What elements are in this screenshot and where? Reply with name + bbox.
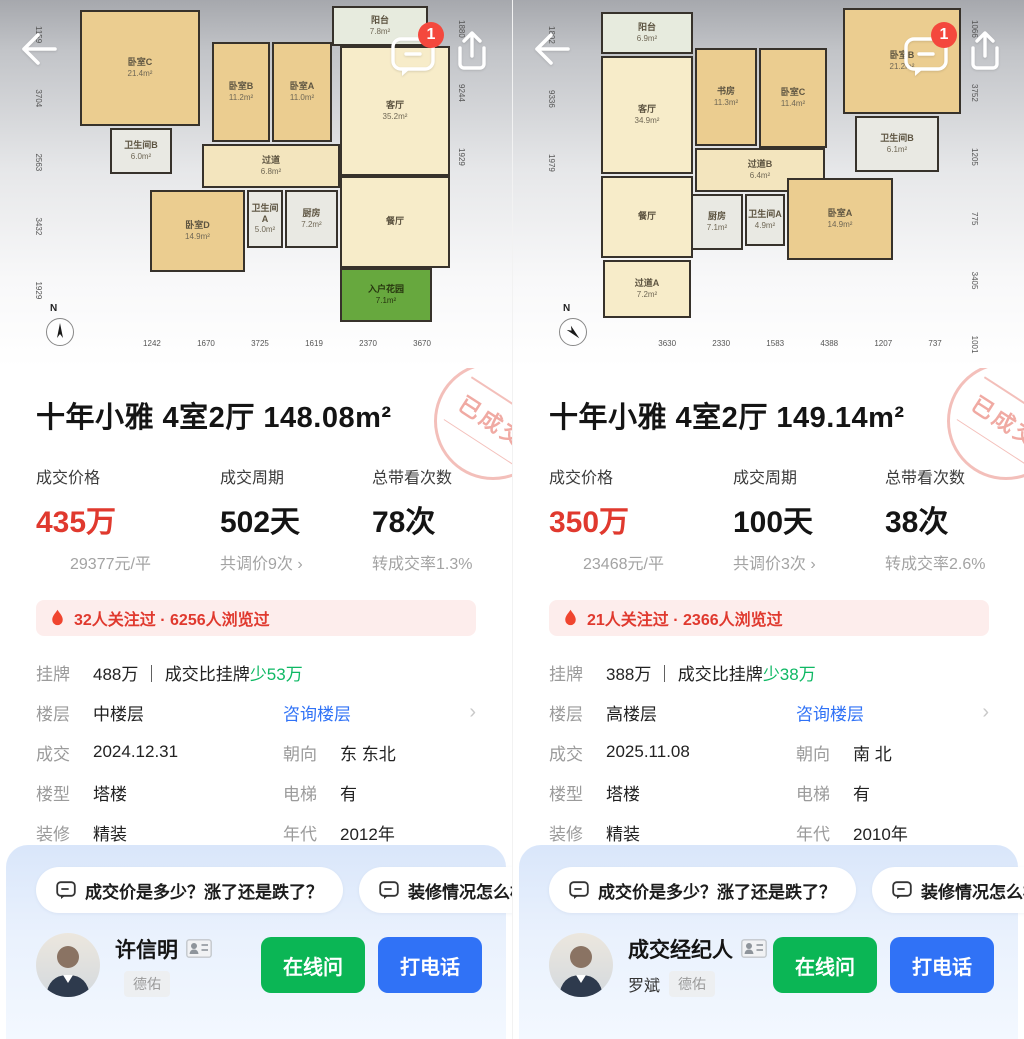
stat-price: 成交价格 350万 23468元/平 (549, 464, 733, 574)
info-card: 已成交 十年小雅 4室2厅 148.08m² 成交价格 435万 29377元/… (0, 368, 512, 845)
stat-cycle: 成交周期 502天 共调价9次 › (220, 464, 372, 574)
id-card-icon (741, 939, 767, 958)
room-dining: 餐厅 (340, 176, 450, 268)
question-chip-decoration[interactable]: 装修情况怎么样? (872, 867, 1024, 913)
room-kitchen: 厨房7.2m² (285, 190, 338, 248)
chat-bubble-icon (379, 881, 399, 900)
room-bedroom-d: 卧室D14.9m² (150, 190, 245, 272)
room-bath-b: 卫生间B6.0m² (110, 128, 172, 174)
consult-floor-link[interactable]: 咨询楼层 (796, 700, 864, 725)
price-diff: 少53万 (250, 660, 303, 685)
flame-icon (50, 609, 65, 627)
chat-bubble-icon (892, 881, 912, 900)
agent-sub-name: 罗斌 (628, 972, 660, 996)
floorplan-left[interactable]: 卧室C21.4m² 卧室B11.2m² 卧室A11.0m² 阳台7.8m² 卫生… (0, 0, 512, 368)
flame-icon (563, 609, 578, 627)
dimensions-bottom: 3630 2330 1583 4388 1207 737 (599, 339, 1001, 348)
room-entry-garden: 入户花园7.1m² (340, 268, 432, 322)
popularity-banner: 21人关注过 · 2366人浏览过 (549, 600, 989, 636)
call-button[interactable]: 打电话 (378, 937, 482, 993)
room-bath-b: 卫生间B6.1m² (855, 116, 939, 172)
share-icon[interactable] (965, 30, 1005, 72)
compass-north-label: N (563, 303, 570, 314)
room-corridor-a: 过道A7.2m² (603, 260, 691, 318)
question-chips: 成交价是多少？涨了还是跌了？ 装修情况怎么样? (36, 867, 506, 913)
price-diff: 少38万 (763, 660, 816, 685)
back-icon[interactable] (18, 30, 58, 68)
dimensions-bottom: 1242 1670 3725 1619 2370 3670 (86, 339, 488, 348)
floorplan-right[interactable]: 阳台6.9m² 客厅34.9m² 书房11.3m² 卧室C11.4m² 卧室B2… (513, 0, 1024, 368)
notification-badge: 1 (418, 22, 444, 48)
room-bedroom-a: 卧室A14.9m² (787, 178, 893, 260)
row-decoration-year: 装修精装 年代2010年 (549, 812, 989, 845)
room-bedroom-b: 卧室B11.2m² (212, 42, 270, 142)
room-study: 书房11.3m² (695, 48, 757, 146)
room-bedroom-c: 卧室C21.4m² (80, 10, 200, 126)
agent-row: 成交经纪人 罗斌 德佑 在线问 打电话 (549, 933, 994, 997)
row-building-elevator: 楼型塔楼 电梯有 (36, 772, 476, 812)
agent-card: 成交价是多少？涨了还是跌了？ 装修情况怎么样? 成交经纪人 罗斌 德佑 (519, 845, 1018, 1039)
stats-row: 成交价格 350万 23468元/平 成交周期 100天 共调价3次 › 总带看… (549, 464, 989, 574)
chevron-right-icon[interactable]: › (469, 702, 476, 722)
agent-avatar[interactable] (549, 933, 613, 997)
question-chip-price[interactable]: 成交价是多少？涨了还是跌了？ (549, 867, 856, 913)
back-icon[interactable] (531, 30, 571, 68)
share-icon[interactable] (452, 30, 492, 72)
stats-row: 成交价格 435万 29377元/平 成交周期 502天 共调价9次 › 总带看… (36, 464, 476, 574)
agency-chip: 德佑 (124, 971, 170, 997)
agent-buttons: 在线问 打电话 (773, 937, 994, 993)
room-bedroom-a: 卧室A11.0m² (272, 42, 332, 142)
agent-subline: 德佑 (115, 971, 261, 997)
popularity-banner: 32人关注过 · 6256人浏览过 (36, 600, 476, 636)
listing-title: 十年小雅 4室2厅 148.08m² (36, 394, 476, 436)
agent-subline: 罗斌 德佑 (628, 971, 773, 997)
agent-name: 许信明 (115, 934, 261, 964)
row-decoration-year: 装修精装 年代2012年 (36, 812, 476, 845)
detail-rows: 挂牌 388万 ｜ 成交比挂牌 少38万 楼层高楼层 咨询楼层› 成交2025.… (549, 652, 989, 845)
compass-icon (46, 318, 74, 346)
agent-card: 成交价是多少？涨了还是跌了？ 装修情况怎么样? 许信明 德佑 (6, 845, 506, 1039)
agency-chip: 德佑 (669, 971, 715, 997)
notification-badge: 1 (931, 22, 957, 48)
detail-rows: 挂牌 488万 ｜ 成交比挂牌 少53万 楼层中楼层 咨询楼层› 成交2024.… (36, 652, 476, 845)
dimensions-right: 1066 3752 1205 775 3405 1001 1979 (970, 20, 979, 417)
room-bedroom-c: 卧室C11.4m² (759, 48, 827, 148)
agent-avatar[interactable] (36, 933, 100, 997)
room-bath-a: 卫生间A5.0m² (247, 190, 283, 248)
row-floor: 楼层中楼层 咨询楼层› (36, 692, 476, 732)
compass-north-label: N (50, 303, 57, 314)
row-floor: 楼层高楼层 咨询楼层› (549, 692, 989, 732)
stat-viewings: 总带看次数 78次 转成交率1.3% (372, 464, 476, 574)
ask-online-button[interactable]: 在线问 (261, 937, 365, 993)
chat-bubble-icon (56, 881, 76, 900)
agent-info: 许信明 德佑 (115, 934, 261, 997)
listing-title: 十年小雅 4室2厅 149.14m² (549, 394, 989, 436)
agent-buttons: 在线问 打电话 (261, 937, 482, 993)
room-bath-a: 卫生间A4.9m² (745, 194, 785, 246)
room-kitchen: 厨房7.1m² (691, 194, 743, 250)
agent-row: 许信明 德佑 在线问 打电话 (36, 933, 482, 997)
room-balcony: 阳台6.9m² (601, 12, 693, 54)
listing-panel-left: 卧室C21.4m² 卧室B11.2m² 卧室A11.0m² 阳台7.8m² 卫生… (0, 0, 512, 1039)
agent-name: 成交经纪人 (628, 934, 773, 964)
stat-price: 成交价格 435万 29377元/平 (36, 464, 220, 574)
compass-icon (559, 318, 587, 346)
ask-online-button[interactable]: 在线问 (773, 937, 877, 993)
row-deal-orientation: 成交2025.11.08 朝向南 北 (549, 732, 989, 772)
question-chip-decoration[interactable]: 装修情况怎么样? (359, 867, 512, 913)
id-card-icon (186, 939, 212, 958)
row-listing-price: 挂牌 388万 ｜ 成交比挂牌 少38万 (549, 652, 989, 692)
info-card: 已成交 十年小雅 4室2厅 149.14m² 成交价格 350万 23468元/… (513, 368, 1024, 845)
agent-info: 成交经纪人 罗斌 德佑 (628, 934, 773, 997)
room-corridor: 过道6.8m² (202, 144, 340, 188)
room-dining: 餐厅 (601, 176, 693, 258)
row-listing-price: 挂牌 488万 ｜ 成交比挂牌 少53万 (36, 652, 476, 692)
row-deal-orientation: 成交2024.12.31 朝向东 东北 (36, 732, 476, 772)
chevron-right-icon[interactable]: › (982, 702, 989, 722)
listing-panel-right: 阳台6.9m² 客厅34.9m² 书房11.3m² 卧室C11.4m² 卧室B2… (512, 0, 1024, 1039)
consult-floor-link[interactable]: 咨询楼层 (283, 700, 351, 725)
question-chip-price[interactable]: 成交价是多少？涨了还是跌了？ (36, 867, 343, 913)
room-living: 客厅34.9m² (601, 56, 693, 174)
stat-cycle: 成交周期 100天 共调价3次 › (733, 464, 885, 574)
row-building-elevator: 楼型塔楼 电梯有 (549, 772, 989, 812)
chat-bubble-icon (569, 881, 589, 900)
stat-viewings: 总带看次数 38次 转成交率2.6% (885, 464, 989, 574)
question-chips: 成交价是多少？涨了还是跌了？ 装修情况怎么样? (549, 867, 1018, 913)
call-button[interactable]: 打电话 (890, 937, 994, 993)
